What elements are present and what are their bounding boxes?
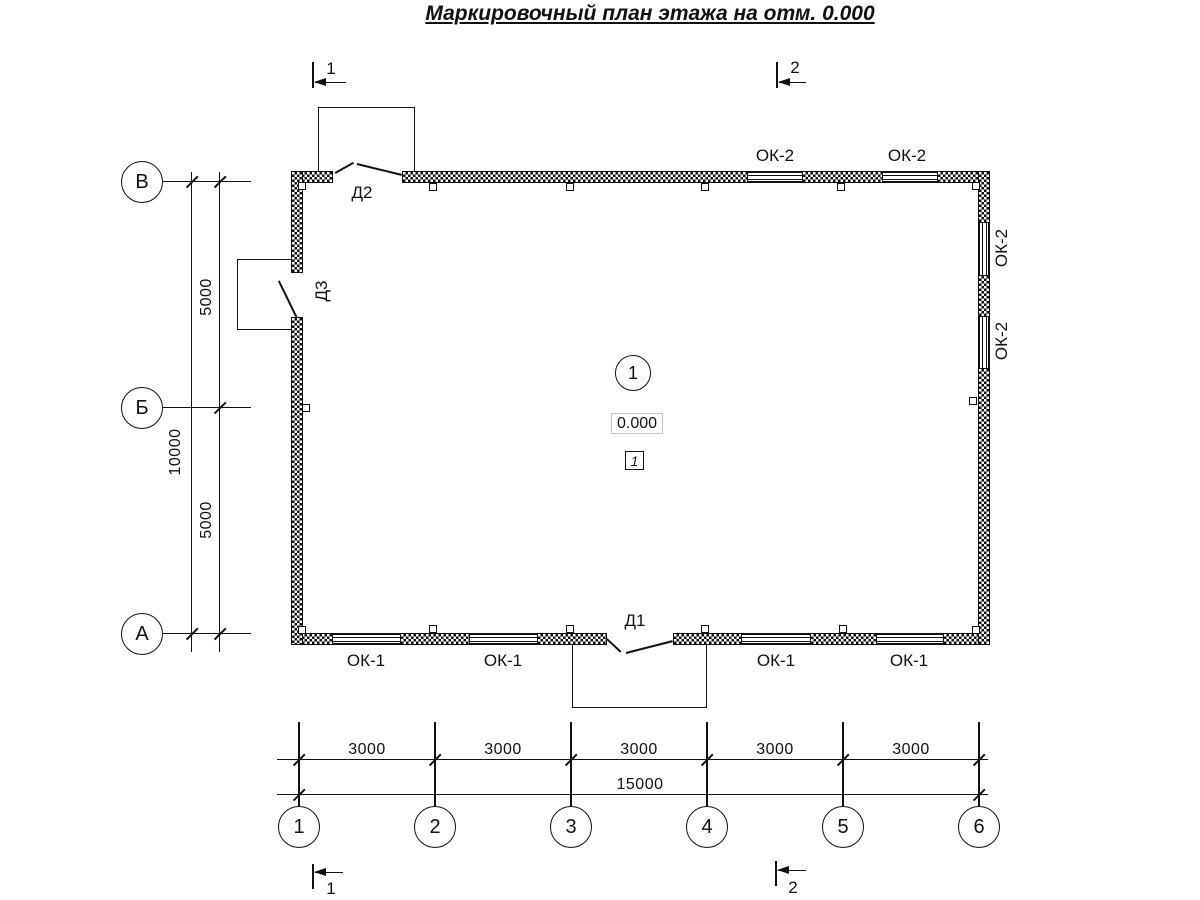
axis-label-1: 1 (293, 816, 304, 839)
dim-line-bottom-spans (277, 759, 988, 760)
dim-value-left-span-2: 5000 (199, 490, 215, 550)
pilaster-mark (969, 397, 977, 405)
section-1-top-label: 1 (321, 60, 341, 78)
axis-line-a (163, 633, 251, 634)
section-2-bottom-label: 2 (783, 879, 803, 897)
dim-value-span-2: 3000 (473, 742, 533, 758)
section-2-top-arrow-icon (778, 78, 790, 86)
porch-door-d2 (318, 107, 415, 171)
axis-bubble-5: 5 (822, 806, 864, 848)
pilaster-mark (837, 183, 845, 191)
corner-mark (298, 626, 306, 634)
window-label-ok2-top-2: ОК-2 (875, 147, 939, 165)
wall-left-seg2 (291, 317, 303, 645)
axis-label-6: 6 (973, 816, 984, 839)
dim-value-left-span-1: 5000 (199, 267, 215, 327)
section-2-top-label: 2 (785, 59, 805, 77)
room-type-mark: 1 (625, 451, 644, 470)
wall-bottom-seg4 (673, 633, 742, 645)
room-number: 1 (628, 363, 638, 384)
pilaster-mark (429, 183, 437, 191)
room-type-value: 1 (631, 453, 639, 469)
dim-value-total: 15000 (610, 777, 670, 793)
axis-bubble-a: А (121, 613, 163, 655)
axis-bubble-v: В (121, 161, 163, 203)
door-label-d2: Д2 (342, 184, 382, 202)
window-ok1-bottom-4 (877, 633, 943, 645)
pilaster-mark (302, 404, 310, 412)
pilaster-mark (839, 625, 847, 633)
wall-top-seg2 (402, 171, 748, 183)
section-1-top-arrow-icon (314, 78, 326, 86)
axis-label-4: 4 (701, 816, 712, 839)
section-2-bottom-arrow-icon (777, 866, 789, 874)
wall-bottom-seg2 (400, 633, 470, 645)
wall-right-seg1 (978, 171, 990, 223)
pilaster-mark (566, 183, 574, 191)
section-1-bottom-arrow-icon (314, 868, 326, 876)
axis-bubble-b: Б (121, 387, 163, 429)
pilaster-mark (566, 625, 574, 633)
dim-value-span-5: 3000 (881, 742, 941, 758)
axis-line-v (163, 181, 251, 182)
window-ok1-bottom-3 (742, 633, 810, 645)
room-number-bubble: 1 (615, 355, 651, 391)
elevation-value: 0.000 (617, 415, 657, 433)
corner-mark (972, 182, 980, 190)
window-label-ok1-2: ОК-1 (471, 652, 535, 670)
porch-door-d3 (237, 259, 291, 330)
dim-value-span-4: 3000 (745, 742, 805, 758)
wall-right-seg3 (978, 368, 990, 645)
window-label-ok2-right-1: ОК-2 (993, 216, 1011, 280)
dim-value-span-3: 3000 (609, 742, 669, 758)
window-ok2-right-2 (978, 317, 990, 368)
corner-mark (298, 182, 306, 190)
wall-top-seg3 (802, 171, 883, 183)
axis-label-v: В (135, 171, 148, 194)
dim-value-span-1: 3000 (337, 742, 397, 758)
elevation-mark: 0.000 (611, 413, 663, 434)
floor-plan-sheet: Маркировочный план этажа на отм. 0.000 1… (0, 0, 1200, 900)
window-ok2-right-1 (978, 223, 990, 275)
drawing-title: Маркировочный план этажа на отм. 0.000 (400, 2, 900, 26)
axis-line-b (163, 407, 251, 408)
window-ok2-top-2 (883, 171, 937, 183)
window-label-ok1-4: ОК-1 (877, 652, 941, 670)
section-1-bottom-label: 1 (321, 880, 341, 898)
axis-label-3: 3 (565, 816, 576, 839)
axis-label-2: 2 (429, 816, 440, 839)
window-ok2-top-1 (748, 171, 802, 183)
porch-door-d1 (572, 645, 707, 708)
wall-bottom-seg5 (810, 633, 877, 645)
axis-bubble-6: 6 (958, 806, 1000, 848)
pilaster-mark (429, 625, 437, 633)
corner-mark (972, 626, 980, 634)
axis-label-b: Б (135, 397, 148, 420)
window-ok1-bottom-1 (333, 633, 400, 645)
dim-line-left-total (191, 172, 192, 652)
axis-bubble-2: 2 (414, 806, 456, 848)
door-label-d3: Д3 (313, 271, 331, 311)
wall-bottom-seg3 (537, 633, 607, 645)
window-label-ok1-3: ОК-1 (744, 652, 808, 670)
dim-line-bottom-total (277, 794, 988, 795)
wall-right-seg2 (978, 275, 990, 317)
axis-label-a: А (135, 623, 148, 646)
dim-value-left-total: 10000 (168, 422, 184, 482)
pilaster-mark (701, 625, 709, 633)
door-label-d1: Д1 (615, 612, 655, 630)
axis-label-5: 5 (837, 816, 848, 839)
pilaster-mark (701, 183, 709, 191)
window-label-ok1-1: ОК-1 (334, 652, 398, 670)
dim-line-left-spans (219, 172, 220, 652)
axis-bubble-4: 4 (686, 806, 728, 848)
axis-bubble-3: 3 (550, 806, 592, 848)
window-label-ok2-top-1: ОК-2 (743, 147, 807, 165)
window-label-ok2-right-2: ОК-2 (993, 309, 1011, 373)
window-ok1-bottom-2 (470, 633, 537, 645)
axis-bubble-1: 1 (278, 806, 320, 848)
